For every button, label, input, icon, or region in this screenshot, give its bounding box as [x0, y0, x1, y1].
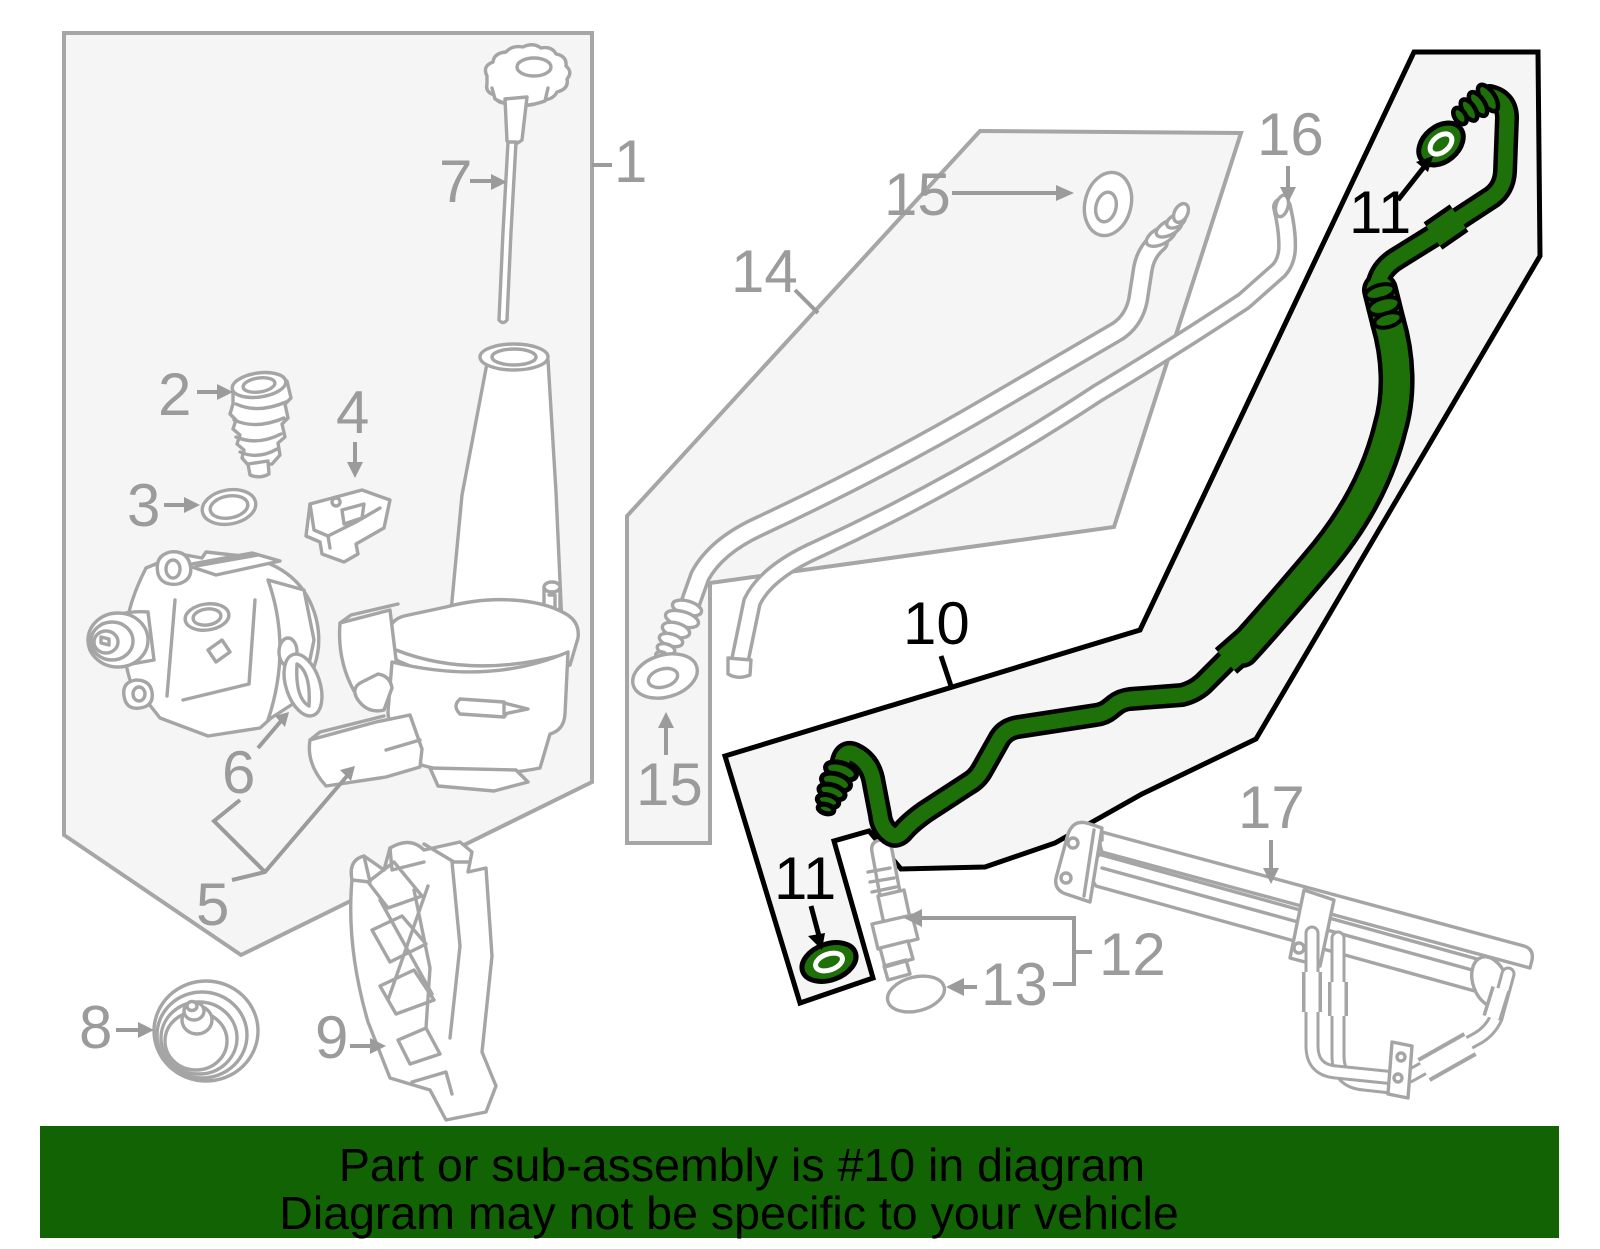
- svg-text:14: 14: [731, 238, 798, 305]
- svg-text:1: 1: [614, 128, 647, 195]
- svg-text:8: 8: [79, 994, 112, 1061]
- svg-text:16: 16: [1257, 101, 1324, 168]
- svg-text:17: 17: [1238, 774, 1305, 841]
- svg-text:7: 7: [439, 148, 472, 215]
- svg-text:13: 13: [981, 951, 1048, 1018]
- svg-text:Part or sub-assembly is #10 in: Part or sub-assembly is #10 in diagram: [339, 1139, 1145, 1191]
- svg-text:11: 11: [774, 845, 836, 912]
- svg-text:11: 11: [1349, 179, 1411, 246]
- svg-text:15: 15: [884, 161, 951, 228]
- svg-text:12: 12: [1099, 921, 1166, 988]
- svg-text:5: 5: [196, 871, 229, 938]
- svg-text:15: 15: [636, 751, 703, 818]
- svg-text:10: 10: [903, 590, 970, 657]
- svg-text:3: 3: [127, 472, 160, 539]
- svg-text:6: 6: [222, 739, 255, 806]
- svg-text:Diagram may not be specific to: Diagram may not be specific to your vehi…: [279, 1187, 1178, 1239]
- svg-text:2: 2: [158, 361, 191, 428]
- svg-text:4: 4: [336, 379, 369, 446]
- svg-text:9: 9: [315, 1004, 348, 1071]
